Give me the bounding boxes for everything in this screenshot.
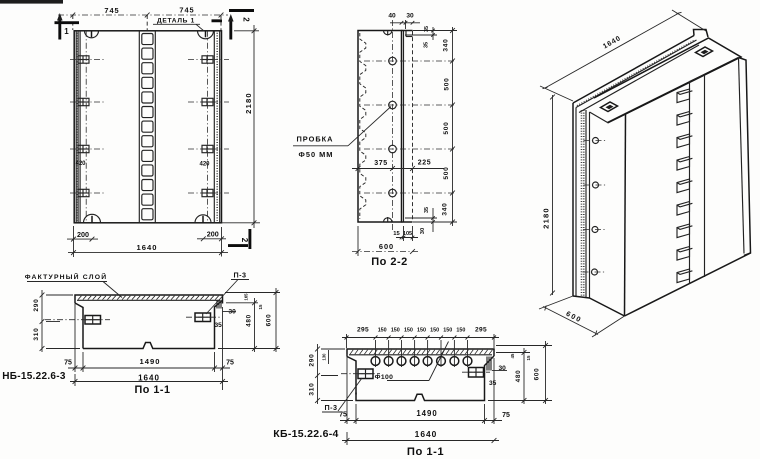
svg-text:2: 2 <box>242 17 251 22</box>
svg-text:600: 600 <box>266 314 273 327</box>
svg-text:75: 75 <box>339 412 347 419</box>
svg-text:ДЕТАЛЬ 1: ДЕТАЛЬ 1 <box>157 18 195 25</box>
svg-text:По 2-2: По 2-2 <box>371 256 408 268</box>
svg-text:2: 2 <box>240 238 249 243</box>
svg-text:745: 745 <box>104 6 119 15</box>
svg-text:75: 75 <box>502 412 510 419</box>
svg-text:ПРОБКА: ПРОБКА <box>296 135 333 144</box>
svg-text:ФАКТУРНЫЙ СЛОЙ: ФАКТУРНЫЙ СЛОЙ <box>25 272 108 281</box>
svg-text:150: 150 <box>391 328 400 334</box>
svg-text:15: 15 <box>258 304 263 309</box>
svg-text:35: 35 <box>489 380 497 387</box>
svg-text:2180: 2180 <box>542 207 551 229</box>
svg-text:1640: 1640 <box>602 35 623 51</box>
svg-text:375: 375 <box>374 160 387 167</box>
svg-text:1: 1 <box>64 27 69 36</box>
svg-text:310: 310 <box>33 327 40 340</box>
svg-text:150: 150 <box>404 328 413 334</box>
svg-text:1640: 1640 <box>415 429 438 439</box>
svg-text:150: 150 <box>417 328 426 334</box>
svg-text:35: 35 <box>424 207 430 213</box>
svg-text:150: 150 <box>378 328 387 334</box>
svg-text:30: 30 <box>499 365 507 372</box>
svg-text:600: 600 <box>534 368 541 381</box>
svg-text:30: 30 <box>420 228 426 234</box>
svg-text:35: 35 <box>424 26 430 32</box>
svg-text:Ф100: Ф100 <box>375 374 394 381</box>
svg-text:200: 200 <box>77 230 89 239</box>
svg-text:75: 75 <box>64 360 72 367</box>
svg-text:150: 150 <box>430 328 439 334</box>
svg-text:480: 480 <box>515 370 522 383</box>
svg-text:500: 500 <box>443 166 450 179</box>
svg-text:П-3: П-3 <box>324 403 337 412</box>
svg-text:225: 225 <box>418 160 431 167</box>
svg-text:500: 500 <box>444 77 451 90</box>
svg-text:500: 500 <box>443 121 450 134</box>
svg-text:15: 15 <box>526 355 531 360</box>
svg-text:200: 200 <box>207 229 219 238</box>
svg-text:340: 340 <box>443 38 450 51</box>
svg-text:310: 310 <box>309 382 316 395</box>
svg-text:150: 150 <box>443 328 452 334</box>
svg-text:По 1-1: По 1-1 <box>135 384 171 396</box>
svg-text:1490: 1490 <box>416 409 437 418</box>
svg-text:295: 295 <box>357 327 369 334</box>
svg-text:150: 150 <box>456 328 465 334</box>
svg-text:340: 340 <box>442 202 449 215</box>
svg-text:295: 295 <box>475 327 487 334</box>
svg-text:480: 480 <box>246 314 253 327</box>
svg-text:600: 600 <box>379 242 394 251</box>
svg-text:КБ-15.22.6-4: КБ-15.22.6-4 <box>273 428 338 440</box>
svg-text:30: 30 <box>229 309 237 316</box>
svg-text:290: 290 <box>33 298 40 311</box>
svg-text:35: 35 <box>215 322 223 329</box>
svg-text:Ф50 ММ: Ф50 ММ <box>299 150 334 159</box>
svg-text:40: 40 <box>388 13 396 20</box>
svg-text:1640: 1640 <box>138 374 160 383</box>
svg-text:165: 165 <box>244 293 249 301</box>
svg-text:30: 30 <box>406 13 414 20</box>
svg-text:15: 15 <box>393 231 400 237</box>
svg-text:420: 420 <box>75 161 86 167</box>
svg-text:1490: 1490 <box>140 357 161 366</box>
svg-text:105: 105 <box>403 231 412 237</box>
svg-text:35: 35 <box>424 42 430 48</box>
svg-text:130: 130 <box>322 353 327 361</box>
svg-text:2180: 2180 <box>244 92 253 114</box>
svg-text:1640: 1640 <box>137 243 158 252</box>
svg-text:75: 75 <box>226 360 234 367</box>
svg-text:290: 290 <box>309 353 316 366</box>
svg-text:745: 745 <box>179 5 194 14</box>
svg-text:420: 420 <box>199 162 210 168</box>
svg-text:П-3: П-3 <box>233 271 246 280</box>
svg-text:НБ-15.22.6-3: НБ-15.22.6-3 <box>2 371 66 382</box>
svg-text:45: 45 <box>510 353 515 358</box>
svg-text:По 1-1: По 1-1 <box>407 446 444 458</box>
